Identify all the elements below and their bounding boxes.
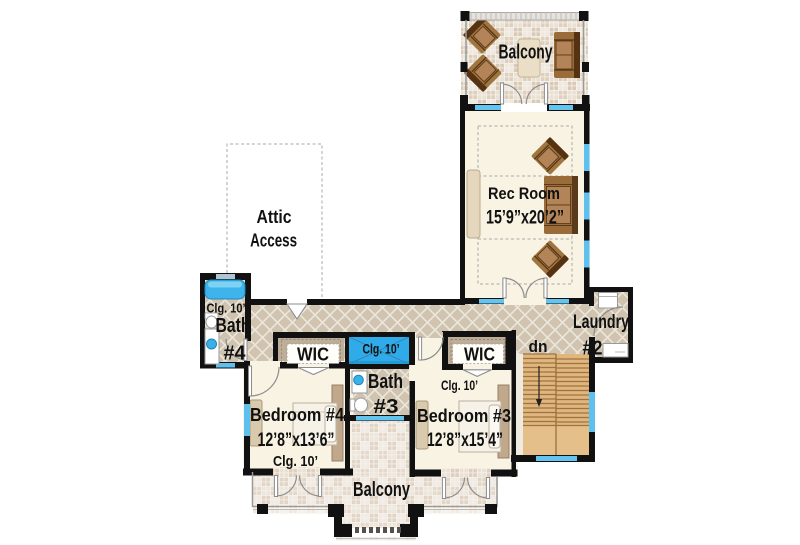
svg-text:12’8”x15’4”: 12’8”x15’4”: [427, 429, 503, 451]
svg-text:15’9”x20’2”: 15’9”x20’2”: [486, 207, 564, 229]
svg-text:Clg. 10’: Clg. 10’: [207, 301, 246, 316]
svg-text:Bedroom #4: Bedroom #4: [250, 404, 345, 425]
svg-text:Access: Access: [250, 231, 297, 251]
svg-text:Balcony: Balcony: [499, 42, 554, 64]
svg-text:Bath: Bath: [368, 371, 403, 393]
svg-text:Attic: Attic: [257, 207, 292, 227]
svg-text:Bedroom #3: Bedroom #3: [417, 405, 511, 426]
svg-text:Clg. 10’: Clg. 10’: [441, 378, 478, 393]
svg-text:#4: #4: [224, 343, 247, 365]
svg-text:WIC: WIC: [464, 345, 495, 365]
svg-text:Laundry: Laundry: [573, 311, 629, 333]
svg-text:12’8”x13’6”: 12’8”x13’6”: [258, 429, 335, 451]
svg-text:Clg. 10’: Clg. 10’: [363, 342, 400, 357]
svg-text:WIC: WIC: [297, 344, 329, 365]
svg-text:Bath: Bath: [216, 315, 251, 337]
svg-text:Rec Room: Rec Room: [488, 184, 560, 203]
svg-text:#2: #2: [583, 337, 603, 360]
svg-text:#3: #3: [374, 396, 399, 418]
svg-text:Clg. 10’: Clg. 10’: [273, 453, 318, 470]
svg-text:Balcony: Balcony: [353, 479, 411, 501]
svg-text:dn: dn: [529, 338, 548, 356]
